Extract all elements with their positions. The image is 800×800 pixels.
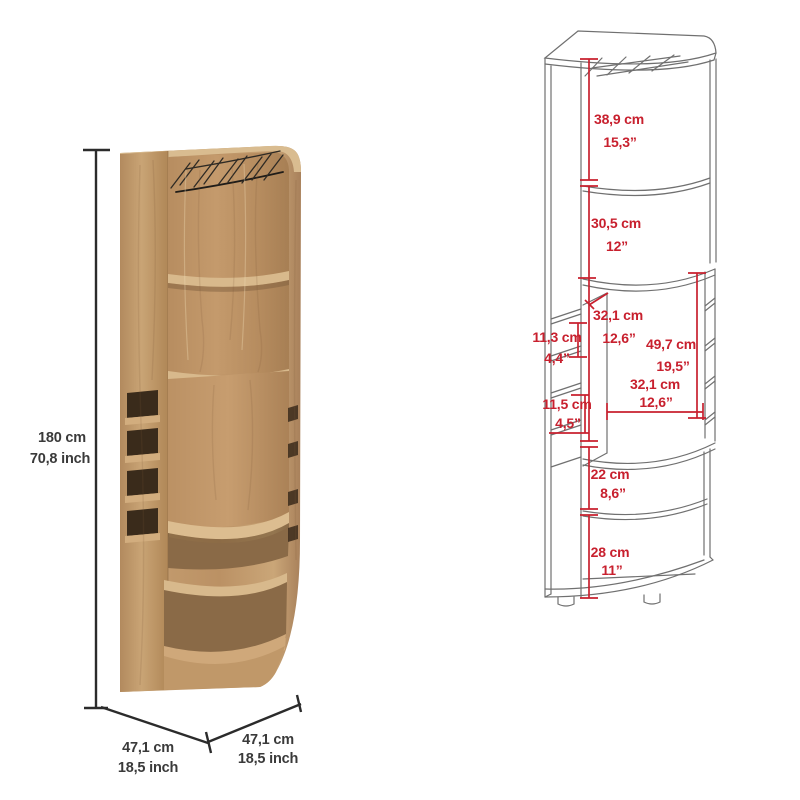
height-label-cm: 180 cm [38, 430, 86, 446]
dim-middle-height-cm: 49,7 cm [646, 336, 696, 352]
dim-middle-height-inch: 19,5” [656, 358, 689, 374]
dim-upper-shelf-cm: 30,5 cm [591, 215, 641, 231]
depth-left-label-inch: 18,5 inch [118, 760, 178, 776]
dim-left-cubby-cm: 11,3 cm [532, 329, 581, 345]
dim-top-section-inch: 15,3” [603, 134, 636, 150]
diagram-top-face [545, 31, 716, 64]
dimension-sheet-canvas: 180 cm 70,8 inch 47,1 cm 18,5 inch 47,1 … [0, 0, 800, 800]
middle-back-panel [168, 371, 289, 528]
dim-lower-shelf-cm: 22 cm [591, 466, 630, 482]
dim-lower-cubby-cm: 11,5 cm [542, 396, 591, 412]
dim-lower-cubby-inch: 4,5” [555, 415, 581, 431]
dim-middle-top-width-inch: 12,6” [602, 330, 635, 346]
product-dimension-sheet: 180 cm 70,8 inch 47,1 cm 18,5 inch 47,1 … [0, 0, 800, 800]
depth-right-label-inch: 18,5 inch [238, 751, 298, 767]
dim-lower-shelf-inch: 8,6” [600, 485, 626, 501]
depth-left-label-cm: 47,1 cm [122, 740, 174, 756]
dim-middle-bottom-width-inch: 12,6” [639, 394, 672, 410]
dim-middle-top-width-cm: 32,1 cm [593, 307, 643, 323]
dim-top-section-cm: 38,9 cm [594, 111, 644, 127]
top-compartment-back-panel [168, 152, 289, 377]
dim-upper-shelf-inch: 12” [606, 238, 628, 254]
depth-right-label-cm: 47,1 cm [242, 732, 294, 748]
dim-bottom-section-cm: 28 cm [591, 544, 630, 560]
height-label-inch: 70,8 inch [30, 451, 90, 467]
dim-bottom-section-inch: 11” [601, 562, 622, 578]
dim-left-cubby-inch: 4,4” [544, 350, 570, 366]
product-photo [120, 146, 301, 692]
diagram-right-cubbies [705, 298, 715, 425]
dim-middle-bottom-width-cm: 32,1 cm [630, 376, 680, 392]
